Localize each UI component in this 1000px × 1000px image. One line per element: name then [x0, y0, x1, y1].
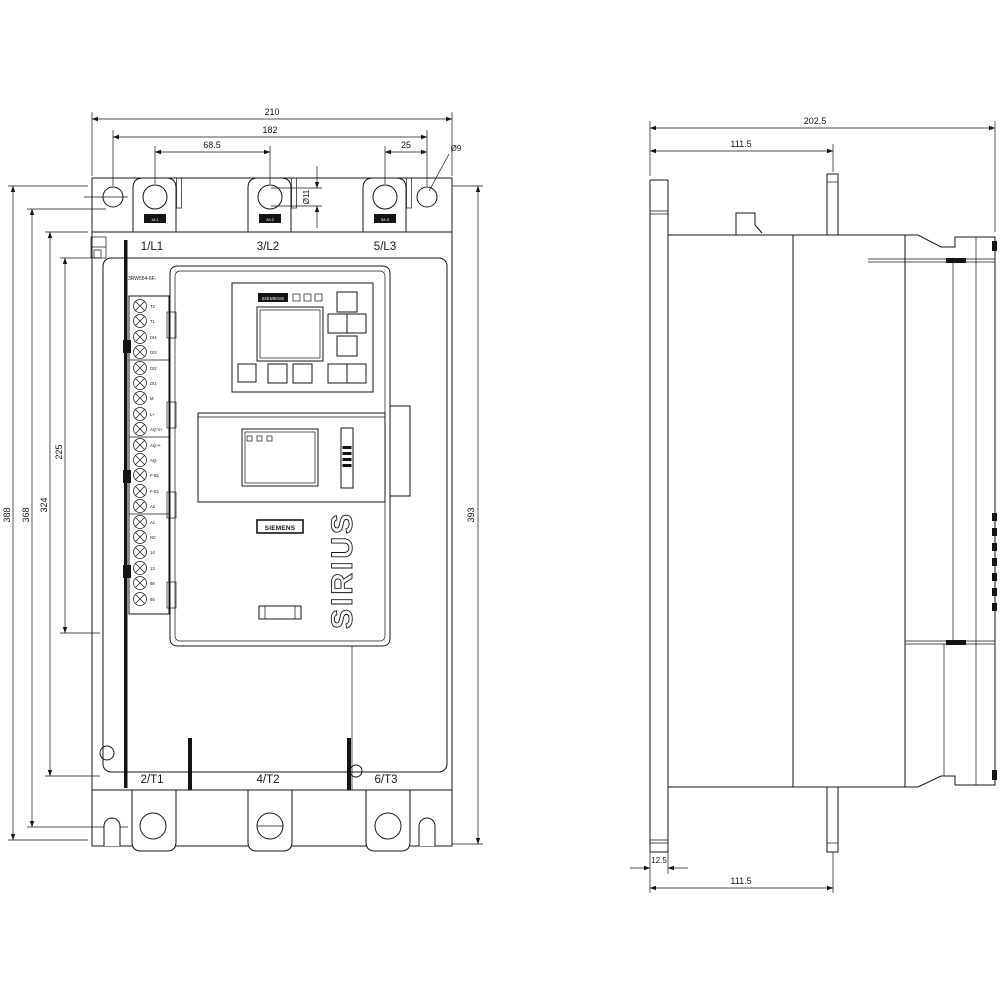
flange-slot: [407, 178, 412, 208]
dim-210: 210: [92, 107, 452, 176]
top-bump: [736, 213, 762, 235]
svg-text:98: 98: [150, 581, 155, 586]
hmi-module-frame: [170, 266, 410, 646]
terminal-label-1L1: 1/L1: [141, 241, 163, 253]
dim-dia9-text: Ø9: [451, 144, 462, 153]
dim-393: 393: [452, 186, 483, 844]
led-indicator: [293, 294, 300, 301]
mounting-tab: [248, 790, 292, 851]
mounting-hole-right: [417, 187, 437, 207]
dim-25-text: 25: [401, 140, 411, 150]
svg-text:DI1: DI1: [150, 381, 157, 386]
control-terminal-strip: T2 T1 DI4 DI3 DI2 DI1 M L+ AQ-V+ AQ-I+ A…: [123, 296, 169, 614]
keyhole-notch: [419, 818, 435, 846]
dim-111-5-top-text: 111.5: [730, 139, 751, 149]
product-code: 3RW554-6F.: [128, 276, 156, 282]
flange-slot: [177, 178, 182, 208]
terminal-sticker-text: 1/L1: [151, 217, 160, 222]
dim-111-5-top: 111.5: [650, 139, 833, 172]
dim-225-text: 225: [54, 444, 64, 459]
led-indicator: [315, 294, 322, 301]
dim-12-5: 12.5: [630, 852, 688, 874]
keypad-button-down: [337, 336, 357, 356]
side-mounting-flange: [650, 180, 668, 852]
terminal-hole-3L2: [258, 185, 282, 209]
dim-368: 368: [21, 209, 128, 827]
flange-slot: [292, 178, 297, 208]
dim-25: 25: [385, 140, 427, 184]
lcd-display: [242, 429, 318, 486]
dim-368-text: 368: [21, 507, 31, 522]
terminal-hole-1L1: [143, 185, 167, 209]
svg-text:DI3: DI3: [150, 350, 157, 355]
svg-text:A1: A1: [150, 520, 156, 525]
svg-text:M: M: [150, 396, 154, 401]
dim-111-5-bottom: 111.5: [650, 852, 833, 893]
svg-text:DI4: DI4: [150, 335, 157, 340]
svg-text:NC: NC: [150, 535, 156, 540]
svg-text:13: 13: [150, 566, 155, 571]
bottom-slot: [259, 606, 301, 619]
dim-210-text: 210: [264, 107, 279, 117]
enclosure-body: 1/L1 3/L2 5/L3 3RW554-6F.: [91, 232, 452, 790]
dim-324-text: 324: [39, 497, 49, 512]
lower-body: 2/T1 4/T2 6/T3: [100, 646, 398, 790]
keypad-button: [268, 364, 287, 383]
dim-dia11-text: Ø11: [302, 189, 311, 204]
terminal-label-4T2: 4/T2: [256, 774, 279, 786]
dim-225: 225: [54, 258, 100, 633]
screw-terminals: [134, 300, 147, 606]
siemens-logo-hmi: SIEMENS: [262, 296, 285, 301]
dim-12-5-text: 12.5: [651, 856, 667, 865]
terminal-label-3L2: 3/L2: [257, 241, 279, 253]
branding: SIEMENS SIRIUS: [257, 511, 359, 629]
bottom-flange: [92, 790, 452, 851]
svg-text:F-E1: F-E1: [150, 489, 160, 494]
terminal-hole-5L3: [373, 185, 397, 209]
side-rail-tab-top: [827, 174, 838, 235]
svg-text:T1: T1: [150, 319, 156, 324]
keypad-button-right: [347, 314, 366, 333]
keypad-button: [293, 364, 312, 383]
terminal-label-6T3: 6/T3: [374, 774, 397, 786]
dim-202-5: 202.5: [650, 116, 995, 232]
dim-388-text: 388: [2, 507, 12, 522]
keypad-button: [238, 364, 256, 382]
top-left-clip: [91, 237, 106, 258]
keypad-button-left: [328, 314, 347, 333]
side-rail-tab-bottom: [827, 787, 838, 852]
led-indicator: [304, 294, 311, 301]
svg-text:AQ-I+: AQ-I+: [150, 443, 162, 448]
svg-text:14: 14: [150, 550, 155, 555]
control-terminal-labels: T2 T1 DI4 DI3 DI2 DI1 M L+ AQ-V+ AQ-I+ A…: [150, 304, 163, 602]
terminal-label-2T1: 2/T1: [140, 774, 163, 786]
dim-68-5: 68.5: [155, 140, 270, 184]
dim-111-5-bottom-text: 111.5: [730, 876, 751, 886]
side-body: [668, 213, 995, 787]
keypad-button: [347, 364, 366, 383]
svg-text:95: 95: [150, 597, 155, 602]
svg-text:AQ-: AQ-: [150, 458, 158, 463]
dim-68-5-text: 68.5: [203, 140, 221, 150]
dim-dia9: Ø9: [429, 144, 462, 191]
dim-324: 324: [39, 232, 100, 776]
svg-text:L+: L+: [150, 412, 155, 417]
sirius-logo: SIRIUS: [326, 511, 359, 629]
dimension-drawing-svg: 210 182 68.5 25 Ø9 Ø11: [0, 0, 1000, 1000]
keypad-button: [328, 364, 347, 383]
mounting-tab: [366, 790, 410, 851]
dim-393-text: 393: [466, 507, 476, 522]
svg-text:A2: A2: [150, 504, 156, 509]
svg-text:AQ-V+: AQ-V+: [150, 427, 163, 432]
display-module: [198, 413, 385, 502]
top-flange: 1/L1 3/L2 5/L3: [84, 178, 452, 232]
terminal-sticker-text: 5/L3: [381, 217, 390, 222]
keyhole-notch: [104, 818, 120, 846]
siemens-logo-front: SIEMENS: [265, 525, 296, 532]
front-view: 210 182 68.5 25 Ø9 Ø11: [2, 107, 483, 851]
svg-text:F-B1: F-B1: [150, 473, 160, 478]
side-connector: [390, 406, 410, 496]
svg-text:DI2: DI2: [150, 366, 157, 371]
technical-drawing-page: 210 182 68.5 25 Ø9 Ø11: [0, 0, 1000, 1000]
keypad-button-up: [337, 292, 357, 312]
side-view: 202.5 111.5 12.5 111.5: [630, 116, 997, 893]
svg-text:T2: T2: [150, 304, 156, 309]
dim-202-5-text: 202.5: [804, 116, 827, 126]
hmi-panel: SIEMENS: [232, 283, 373, 392]
terminal-label-5L3: 5/L3: [374, 241, 396, 253]
hmi-display: [257, 307, 323, 361]
front-hole: [100, 746, 114, 760]
dim-182-text: 182: [262, 125, 277, 135]
mounting-tab: [132, 790, 176, 851]
terminal-sticker-text: 3/L2: [266, 217, 275, 222]
